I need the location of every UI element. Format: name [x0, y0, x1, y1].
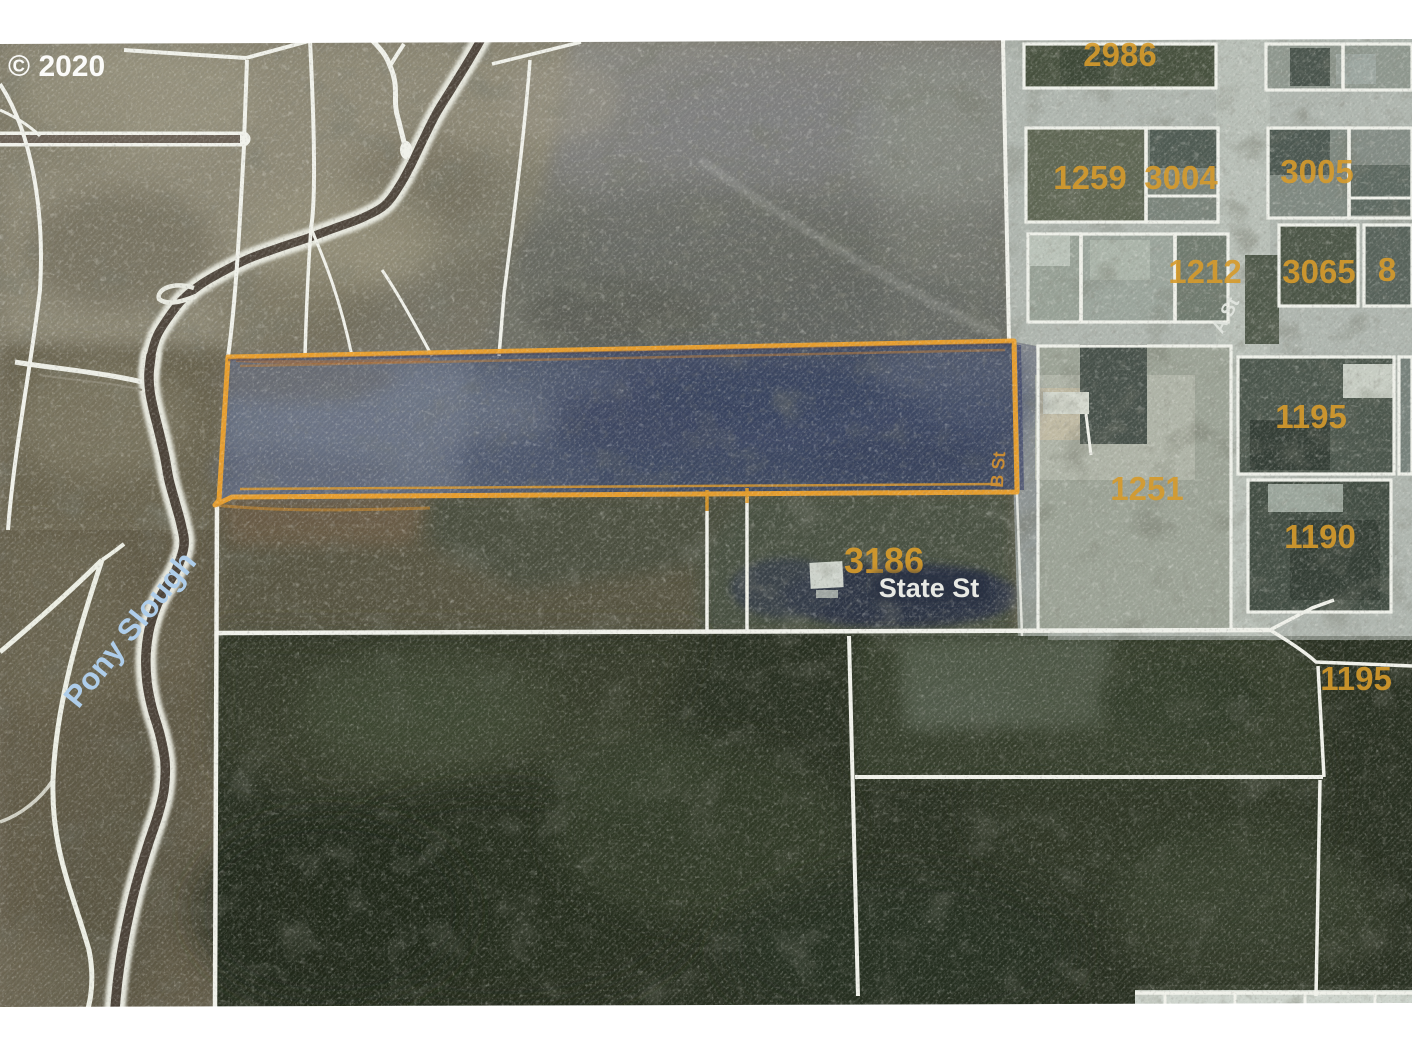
svg-text:3065: 3065 — [1282, 253, 1355, 290]
svg-text:8: 8 — [1378, 251, 1396, 288]
svg-text:1190: 1190 — [1284, 518, 1356, 555]
svg-text:State St: State St — [879, 573, 980, 603]
svg-text:1212: 1212 — [1168, 253, 1241, 290]
svg-text:1195: 1195 — [1320, 660, 1392, 697]
svg-text:3004: 3004 — [1144, 159, 1218, 196]
svg-text:3005: 3005 — [1280, 153, 1353, 190]
svg-text:1251: 1251 — [1110, 470, 1183, 507]
svg-text:2986: 2986 — [1083, 36, 1156, 73]
svg-text:1259: 1259 — [1053, 159, 1126, 196]
svg-text:B St: B St — [987, 451, 1009, 488]
svg-text:1195: 1195 — [1275, 398, 1347, 435]
svg-text:© 2020: © 2020 — [8, 50, 105, 83]
